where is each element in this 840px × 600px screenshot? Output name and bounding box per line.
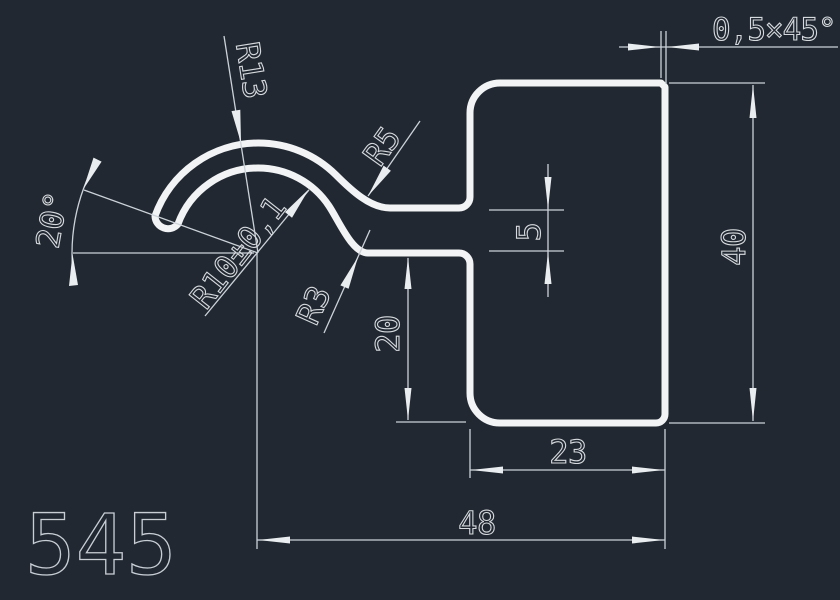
arrowhead [632,537,664,544]
arrowhead [545,177,552,209]
arrowhead [83,158,101,190]
depth-label: 20 [369,315,407,353]
arrowhead [632,467,664,474]
title-block: 545 [25,496,177,594]
arrowhead [405,257,412,289]
arrowhead [545,252,552,284]
r3-label: R3 [289,280,339,330]
r5-label: R5 [356,120,409,173]
dim-5: 5 [489,164,564,297]
thickness-label: 5 [510,223,548,242]
dim-23: 23 [470,429,665,478]
arrowhead [69,254,78,286]
arrowhead [405,388,412,420]
arrowhead [628,44,660,51]
chamfer-label: 0,5×45° [712,12,836,48]
dim-40: 40 [669,83,765,423]
total-width-label: 48 [458,504,496,542]
arrowhead [258,537,290,544]
arrowhead [340,257,358,289]
arrowhead [232,110,242,143]
dim-chamfer: 0,5×45° [619,12,838,84]
cad-drawing: 20° R13 R10±0,1 R5 R3 0,5×45° [0,0,840,600]
part-number: 545 [25,496,177,594]
angle-label: 20° [29,189,76,251]
arrowhead [667,44,699,51]
r13-label: R13 [228,39,274,101]
arrowhead [471,467,503,474]
arrowhead [750,85,757,118]
dim-angle-20: 20° [29,158,102,286]
arrowhead [750,388,757,421]
height-label: 40 [715,228,753,266]
angle-dimension-arc [72,160,97,282]
dim-r5: R5 [356,120,420,196]
block-width-label: 23 [549,433,587,471]
dim-20: 20 [369,257,466,422]
